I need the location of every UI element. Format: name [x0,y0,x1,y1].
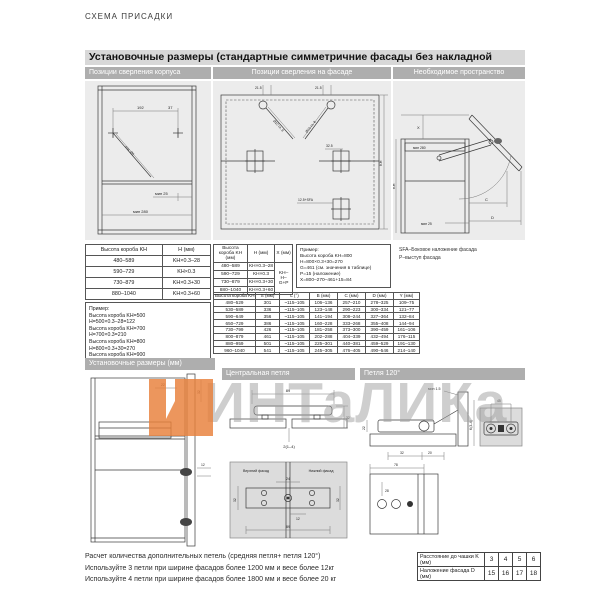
table-row: 480–589KH×0.3–28KH–H–G+P [214,263,293,271]
kd-value: 4 [499,553,513,567]
table-row: 880–1040KH×0.3+60 [86,289,211,300]
table-cell: ~115–105 [280,326,310,333]
hinge120-dim-k: K(3–6) [469,420,473,430]
text-line: H=800×0.3+30=270 [89,346,207,353]
text-line: Используйте 3 петли при ширине фасадов б… [85,563,336,575]
kd-value: 5 [513,553,527,567]
table-row: Наложение фасада D (мм) 15 16 17 18 [418,567,541,581]
label-lower-facade: Нижний фасад [309,469,335,473]
central-dim-12: 12 [296,517,300,521]
central-dim-24: 24 [286,477,290,481]
table-cell: 123–148 [310,306,338,313]
table-cell: 440–381 [338,340,366,347]
table-cell: 278–325 [366,299,394,306]
kh-table-block: Высота короба KHH (мм) 480–589KH×0.3–285… [85,244,211,369]
table-cell: 160–228 [310,320,338,327]
cabinet-dim-22: 22 [161,383,165,387]
table-cell: 432–494 [366,333,394,340]
table-cell: 191–130 [394,340,420,347]
text-line: Пример: [89,306,207,313]
table-cell: 386 [256,320,280,327]
table-cell: 480–589 [86,256,163,267]
space-dim-c: C [485,197,488,202]
col-header: C (мм) [338,293,366,300]
table-cell: 730–879 [214,279,248,287]
table-cell: ~115–105 [280,306,310,313]
page-title: СХЕМА ПРИСАДКИ [85,12,173,21]
table-cell: 308–244 [338,313,366,320]
table-row: 480–529301~115–105106–136257–210278–3251… [214,299,420,306]
dim-32-5: 32.5 [326,144,333,148]
kd-value: 17 [513,567,527,581]
table-row: Расстояние до чашки K (мм) 3 4 5 6 [418,553,541,567]
dim-37: 37 [168,105,173,110]
text-line: Расчет количества дополнительных петель … [85,551,336,563]
central-dim-32r: 32 [336,498,340,502]
section1-title: Установочные размеры (стандартные симмет… [85,50,525,65]
main-dimension-table: Высота короба KH (мм)S (мм)L (°)B (мм)C … [213,292,420,354]
table-cell: 225–301 [310,340,338,347]
table-cell: 109–75 [394,299,420,306]
cabinet-side-drawing: 22 32 12 [85,372,215,550]
cabinet-dim-32: 32 [197,390,201,394]
table-cell: 390–459 [366,326,394,333]
sfa-note-line1: SFA–Боковое наложение фасада [399,247,477,255]
central-hinge-panel: 89 32 2(1–4) Верхний фасад Нижний фасад … [222,382,355,550]
table-cell: 490–546 [366,347,394,354]
table-row: 800–879461~115–105202–288404–339432–4941… [214,333,420,340]
kd-value: 16 [499,567,513,581]
table-cell: 327–364 [366,313,394,320]
housing-drill-note: отв. Ø5 [124,145,135,156]
table-cell: KH×0.3 [162,267,210,278]
dim-min280: мин 280 [133,209,149,214]
table-cell: 214–140 [394,347,420,354]
main-table-block: Высота короба KH (мм)S (мм)L (°)B (мм)C … [213,292,420,354]
table-cell: 960–1040 [214,347,256,354]
table-cell: 300–334 [366,306,394,313]
hinge120-dim-32: 32 [400,451,404,455]
table-cell: 202–288 [310,333,338,340]
hinge120-min15: мин 1.5 [428,387,440,391]
table-cell: ~115–105 [280,299,310,306]
table-cell: ~115–105 [280,313,310,320]
space-min280: мин 280 [413,146,426,150]
table-row: 530–589336~115–105123–148290–223300–3341… [214,306,420,313]
dim-sfa: 12.5+SFA [298,198,314,202]
table-cell: 356 [256,313,280,320]
table-cell: 245–305 [310,347,338,354]
dim-21-5-right: 21.5 [315,86,322,90]
kd-value: 6 [527,553,541,567]
hinge120-dim-45: 45 [497,399,501,403]
khx-table-block: Высота короба KH (мм) H (мм) X (мм) 480–… [213,244,293,295]
khx-table: Высота короба KH (мм) H (мм) X (мм) 480–… [213,244,293,295]
table-header-row: Высота короба KH (мм) H (мм) X (мм) [214,245,293,263]
space-drawing-panel: мин 280 X мин 25 C D KH [393,81,525,240]
hinge120-dim-28: 28 [385,489,389,493]
table-cell: 541 [256,347,280,354]
table-cell: 476–405 [338,347,366,354]
table-row: 730–879KH×0.3+30 [86,278,211,289]
central-dim-32: 32 [346,416,350,420]
table-cell: KH×0.3+60 [162,289,210,300]
khx-example-box: Пример:Высота короба KH=800H=800×0.3+30=… [296,244,391,288]
table-cell: 141–194 [310,313,338,320]
table-cell: 459–529 [366,340,394,347]
kd-row-label: Расстояние до чашки K (мм) [418,553,485,567]
col-header: D (мм) [366,293,394,300]
central-hinge-drawing: 89 32 2(1–4) Верхний фасад Нижний фасад … [222,382,355,550]
table-cell: 257–210 [338,299,366,306]
table-cell: 590–729 [86,267,163,278]
table-cell: 800–879 [214,333,256,340]
central-dim-gap: 2(1–4) [283,444,295,449]
table-cell: 106–136 [310,299,338,306]
table-cell: KH×0.3+30 [247,279,274,287]
table-cell: 336 [256,306,280,313]
text-line: H=700×0.3=210 [89,332,207,339]
col-header: Y (мм) [394,293,420,300]
hinge120-drawing: мин 1.5 22 32 20 K(3–6) 45 78 28 [360,382,525,550]
table-header-row: Высота короба KH (мм)S (мм)L (°)B (мм)C … [214,293,420,300]
space-dim-d: D [491,215,494,220]
table-cell: 161–106 [394,326,420,333]
text-line: Используйте 4 петли при ширине фасадов б… [85,574,336,586]
kd-value: 18 [527,567,541,581]
space-min25: мин 25 [421,222,432,226]
table-cell: 501 [256,340,280,347]
table-row: 650–729386~115–105160–228333–268355–4081… [214,320,420,327]
table-cell: 301 [256,299,280,306]
table-cell: ~115–105 [280,320,310,327]
table-cell: 480–529 [214,299,256,306]
dim-21-5-left: 21.5 [255,86,262,90]
header-facade-drilling: Позиции сверления на фасаде [213,67,391,79]
space-dim-kh: KH [393,183,396,189]
text-line: Высота короба KH=700 [89,326,207,333]
table-cell: 730–799 [214,326,256,333]
cabinet-side-panel: 22 32 12 [85,372,215,550]
header-install-dims: Установочные размеры (мм) [85,358,215,370]
table-cell: KH×0.3–28 [162,256,210,267]
table-cell: 650–729 [214,320,256,327]
text-line: X=800–270–461+15=84 [300,278,387,284]
table-cell: 530–589 [214,306,256,313]
text-line: H=500×0.3–28=122 [89,319,207,326]
header-housing-drilling: Позиции сверления корпуса [85,67,211,79]
table-row: 480–589KH×0.3–28 [86,256,211,267]
header-central-hinge: Центральная петля [222,368,355,380]
table-cell: 121–77 [394,306,420,313]
hinge120-panel: мин 1.5 22 32 20 K(3–6) 45 78 28 [360,382,525,550]
table-cell: 404–339 [338,333,366,340]
table-row: 590–649356~115–105141–194308–244327–3641… [214,313,420,320]
table-cell: ~115–105 [280,340,310,347]
table-cell: KH×0.3 [247,271,274,279]
table-row: 730–799426~115–105181–258373–300390–4591… [214,326,420,333]
label-upper-facade: Верхний фасад [243,469,270,473]
table-cell: 590–729 [214,271,248,279]
dim-192: 192 [137,105,144,110]
col-header: Высота короба KH (мм) [214,245,248,263]
kd-value: 15 [485,567,499,581]
col-header: X (мм) [275,245,293,263]
table-cell: KH×0.3+30 [162,278,210,289]
x-formula-cell: KH–H–G+P [275,263,293,295]
col-header: Высота короба KH (мм) [214,293,256,300]
table-cell: 880–959 [214,340,256,347]
table-cell: 461 [256,333,280,340]
col-header: S (мм) [256,293,280,300]
table-row: 880–959501~115–105225–301440–381459–5291… [214,340,420,347]
table-header-row: Высота короба KHH (мм) [86,245,211,256]
dim-min25: мин 25 [155,191,169,196]
table-cell: ~115–105 [280,333,310,340]
kh-height-table: Высота короба KHH (мм) 480–589KH×0.3–285… [85,244,211,300]
header-required-space: Необходимое пространство [393,67,525,79]
housing-drawing-panel: 192 37 отв. Ø5 мин 25 мин 280 [85,81,211,240]
table-cell: 730–879 [86,278,163,289]
col-header: Высота короба KH [86,245,163,256]
table-cell: 144–94 [394,320,420,327]
table-cell: 355–408 [366,320,394,327]
table-cell: 181–258 [310,326,338,333]
header-hinge-120: Петля 120° [360,368,525,380]
kd-row-label: Наложение фасада D (мм) [418,567,485,581]
col-header: B (мм) [310,293,338,300]
central-dim-89b: 89 [286,524,291,529]
hinge120-dim-78: 78 [394,463,398,467]
space-dim-x: X [417,125,420,130]
facade-drawing-panel: 21.5 21.5 Ø10 гл. 8 Ø10 гл. 8 32.5 12.5+… [213,81,391,240]
sfa-note-line2: P–выступ фасада [399,255,477,263]
space-drawing: мин 280 X мин 25 C D KH [393,81,525,240]
kd-value: 3 [485,553,499,567]
hinge120-dim-22: 22 [362,426,366,430]
table-cell: 176–115 [394,333,420,340]
col-header: L (°) [280,293,310,300]
hinge120-dim-20: 20 [428,451,432,455]
col-header: H (мм) [247,245,274,263]
table-cell: 333–268 [338,320,366,327]
housing-drawing: 192 37 отв. Ø5 мин 25 мин 280 [85,81,211,240]
table-row: 590–729KH×0.3 [86,267,211,278]
col-header: H (мм) [162,245,210,256]
dim-kh-facade: KH [378,160,383,166]
table-cell: 590–649 [214,313,256,320]
table-cell: 132–84 [394,313,420,320]
table-cell: 480–589 [214,263,248,271]
table-cell: 373–300 [338,326,366,333]
cabinet-dim-12: 12 [201,463,205,467]
kd-lookup-table: Расстояние до чашки K (мм) 3 4 5 6 Налож… [417,552,541,581]
table-row: 960–1040541~115–105245–305476–405490–546… [214,347,420,354]
table-cell: 880–1040 [86,289,163,300]
central-dim-89: 89 [286,388,291,393]
drill-note-left: Ø10 гл. 8 [272,119,284,132]
sfa-note: SFA–Боковое наложение фасада P–выступ фа… [399,247,477,262]
table-cell: 426 [256,326,280,333]
hinge-count-notes: Расчет количества дополнительных петель … [85,551,336,586]
table-cell: ~115–105 [280,347,310,354]
text-line: Высота короба KH=800 [89,339,207,346]
table-cell: KH×0.3–28 [247,263,274,271]
facade-drawing: 21.5 21.5 Ø10 гл. 8 Ø10 гл. 8 32.5 12.5+… [213,81,391,240]
central-dim-32l: 32 [233,498,237,502]
table-cell: 290–223 [338,306,366,313]
text-line: Высота короба KH=500 [89,313,207,320]
